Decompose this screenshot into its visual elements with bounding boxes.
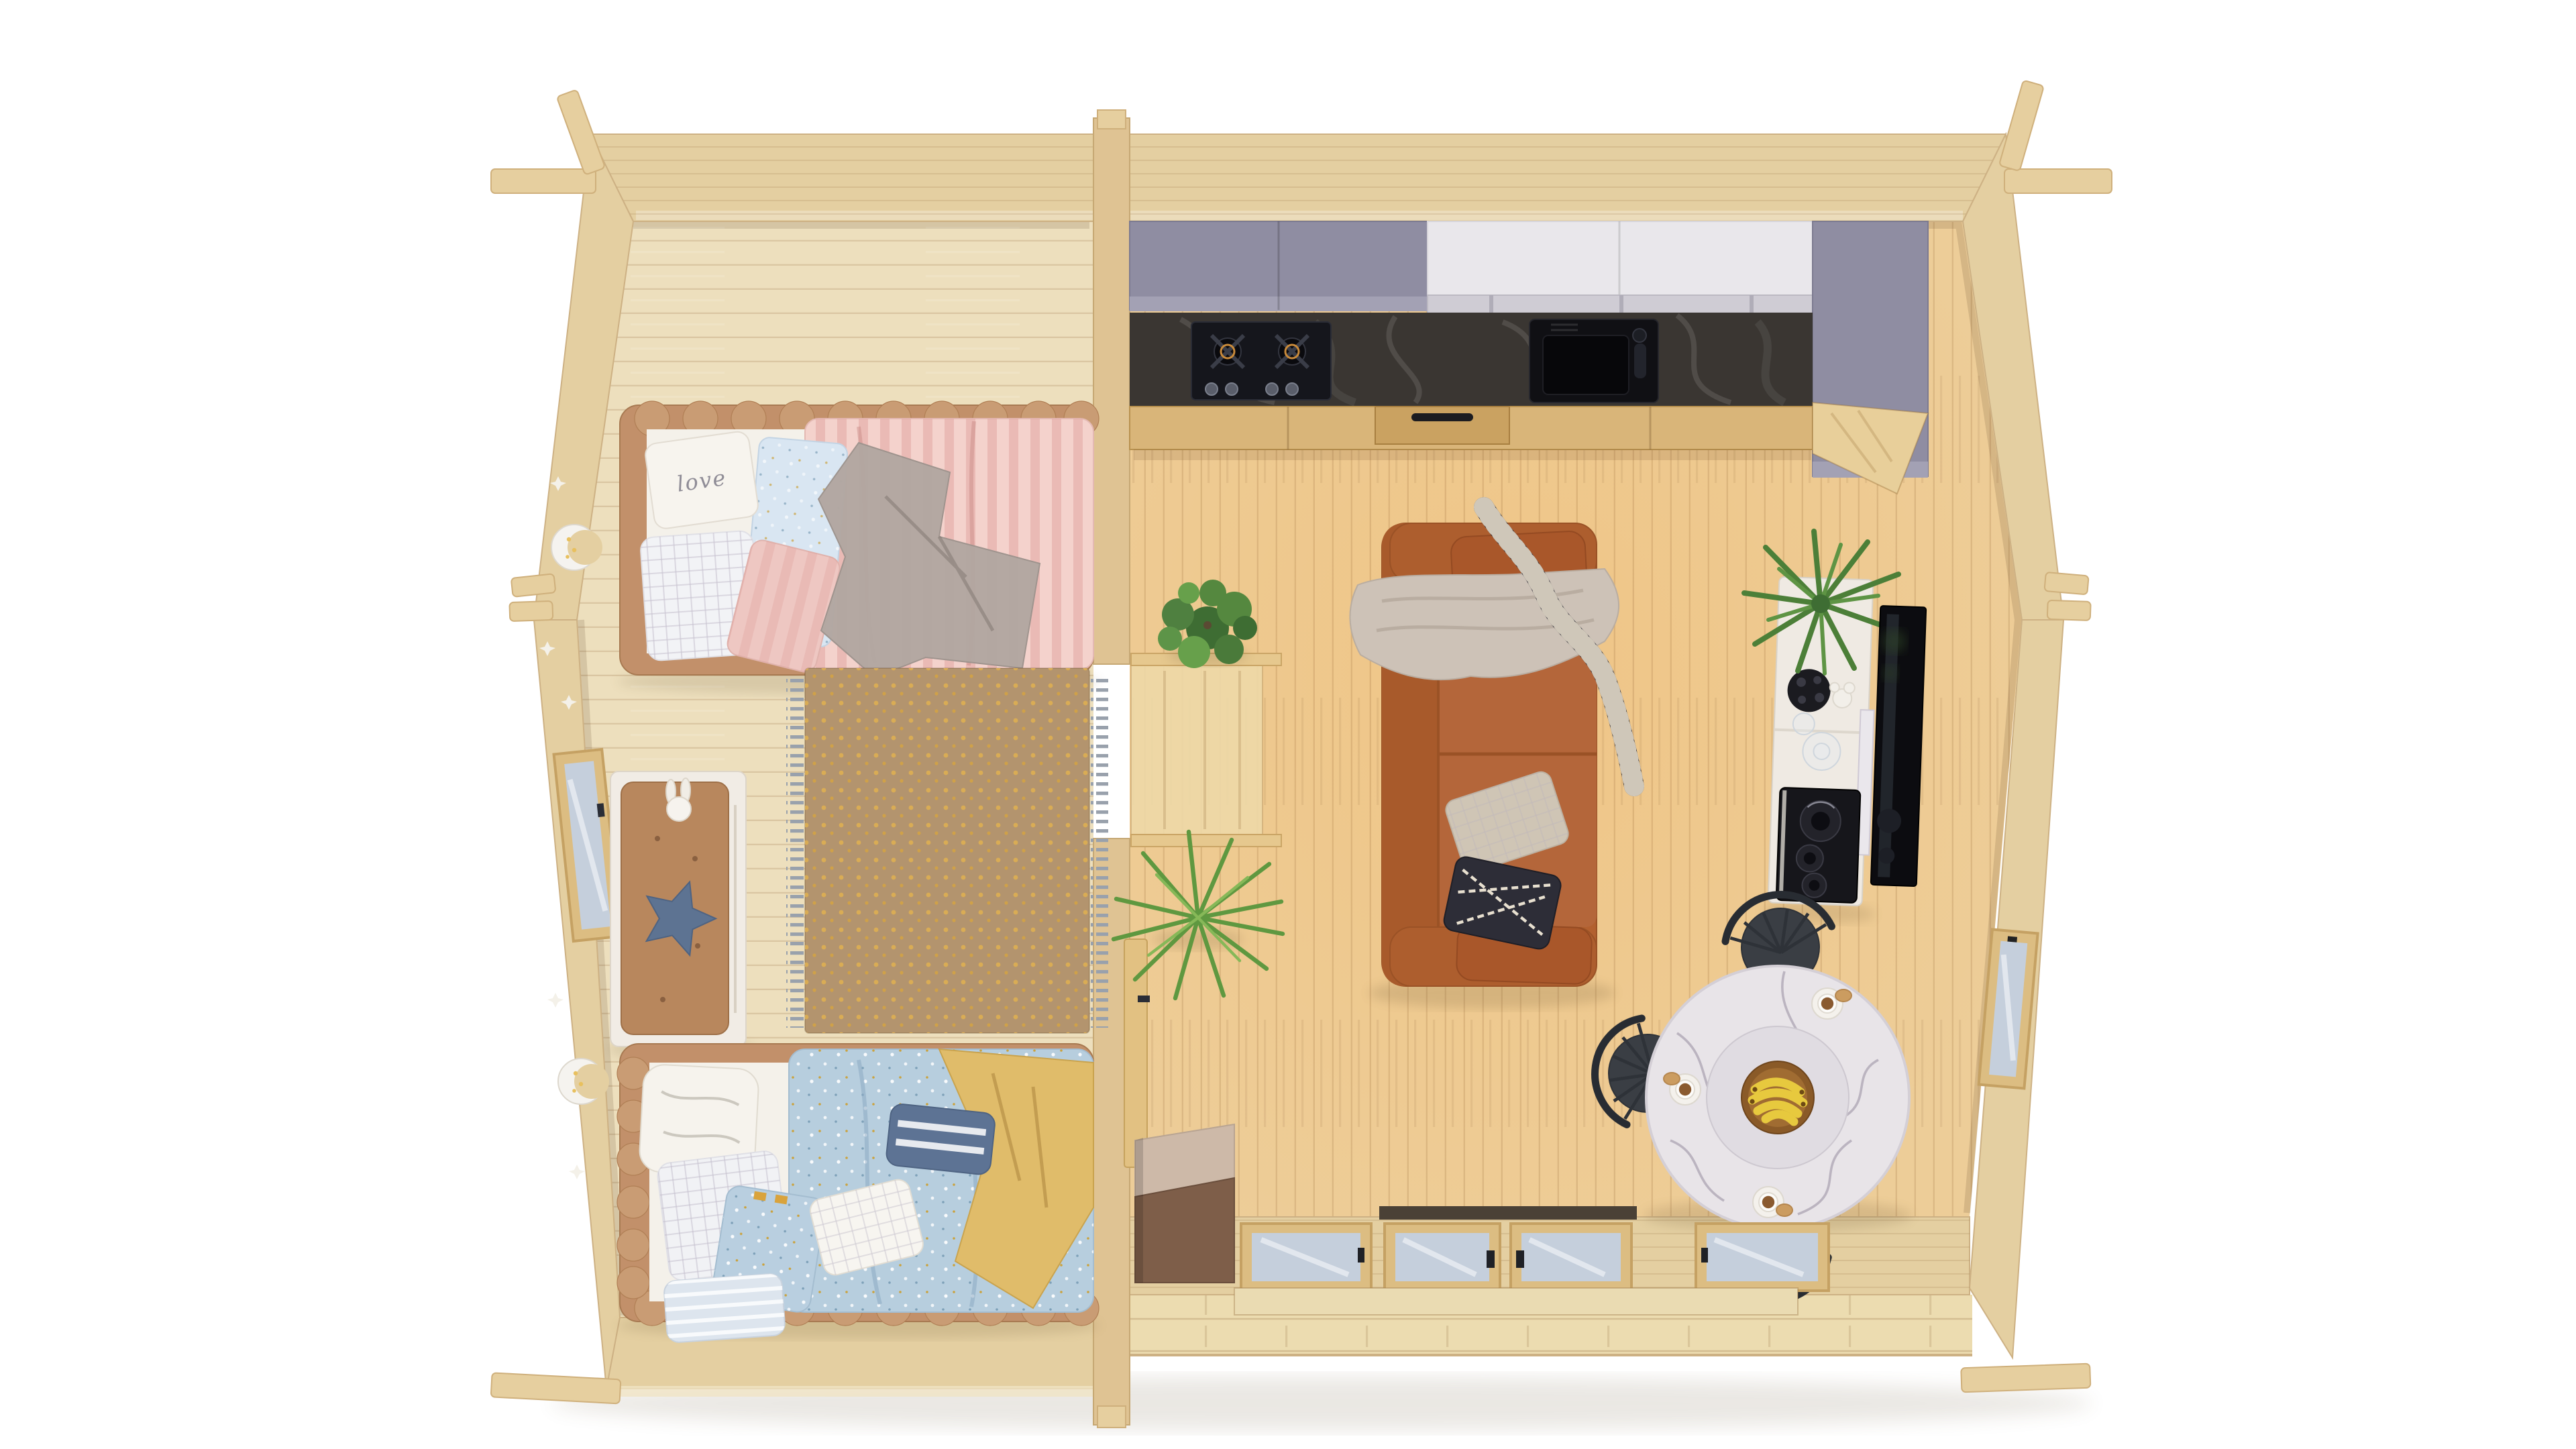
floorplan-svg: love bbox=[0, 0, 2576, 1449]
hob-burner-right bbox=[1276, 335, 1308, 368]
cabin-floorplan-render: love bbox=[0, 0, 2576, 1449]
kitchen-sink bbox=[1529, 319, 1658, 402]
kitchen-floor-shadow bbox=[1134, 449, 1811, 460]
divider-top-stub bbox=[1097, 110, 1126, 129]
log-bottom-right bbox=[1961, 1364, 2090, 1393]
tv-wall-mounted bbox=[1871, 606, 1926, 886]
front-door-right bbox=[1511, 1224, 1631, 1291]
log-top-right-h bbox=[2004, 169, 2112, 193]
front-glazing bbox=[1234, 1206, 1829, 1315]
front-window-1 bbox=[1241, 1224, 1371, 1291]
love-pillow: love bbox=[644, 430, 759, 529]
kitchen bbox=[1130, 221, 1928, 494]
bed-pink: love bbox=[620, 401, 1099, 678]
doorway-rail-bottom bbox=[1131, 835, 1281, 847]
wall-top-grain bbox=[590, 134, 2006, 221]
log-mid-left-1 bbox=[511, 574, 556, 597]
log-mid-right-2 bbox=[2047, 600, 2091, 621]
banana-bowl bbox=[1741, 1061, 1814, 1134]
entry-cabinet bbox=[1135, 1124, 1234, 1283]
divider-bottom-stub bbox=[1097, 1406, 1126, 1428]
kitchen-base-cabinets bbox=[1130, 407, 1813, 449]
speaker-tray bbox=[1776, 788, 1861, 903]
dining-table bbox=[1646, 966, 1909, 1229]
bedroom: love bbox=[539, 401, 1108, 1343]
rug-gold-dots bbox=[786, 668, 1108, 1033]
open-door-leaf bbox=[1124, 939, 1150, 1167]
striped-pillow-bed2 bbox=[663, 1273, 786, 1343]
log-top-left-h bbox=[491, 169, 596, 193]
storage-bench bbox=[608, 771, 755, 1060]
navy-pillow-bed2 bbox=[885, 1103, 996, 1175]
drawer-handle bbox=[1411, 413, 1473, 421]
wall-bottom-bedroom-edge bbox=[610, 1386, 1093, 1397]
bed-blue bbox=[617, 1044, 1099, 1343]
log-top-right-angled bbox=[1999, 80, 2044, 171]
log-mid-left-2 bbox=[509, 601, 553, 621]
front-sill-board bbox=[1234, 1288, 1798, 1315]
rug-fringe-right bbox=[1091, 676, 1108, 1028]
gas-hob bbox=[1191, 322, 1331, 400]
hob-burner-left bbox=[1212, 335, 1244, 368]
log-top-left-angled bbox=[557, 89, 605, 174]
front-door-left bbox=[1385, 1224, 1500, 1291]
drawer-recessed bbox=[1375, 407, 1509, 444]
sofa bbox=[1350, 507, 1634, 1009]
door-lintel-dark bbox=[1379, 1206, 1637, 1220]
doorway-floor-panel bbox=[1131, 665, 1263, 835]
log-bottom-left bbox=[491, 1373, 621, 1403]
rug-fringe-left bbox=[786, 676, 804, 1028]
front-window-2 bbox=[1696, 1224, 1829, 1291]
log-mid-right-1 bbox=[2044, 572, 2088, 594]
door-handle bbox=[1138, 996, 1150, 1002]
